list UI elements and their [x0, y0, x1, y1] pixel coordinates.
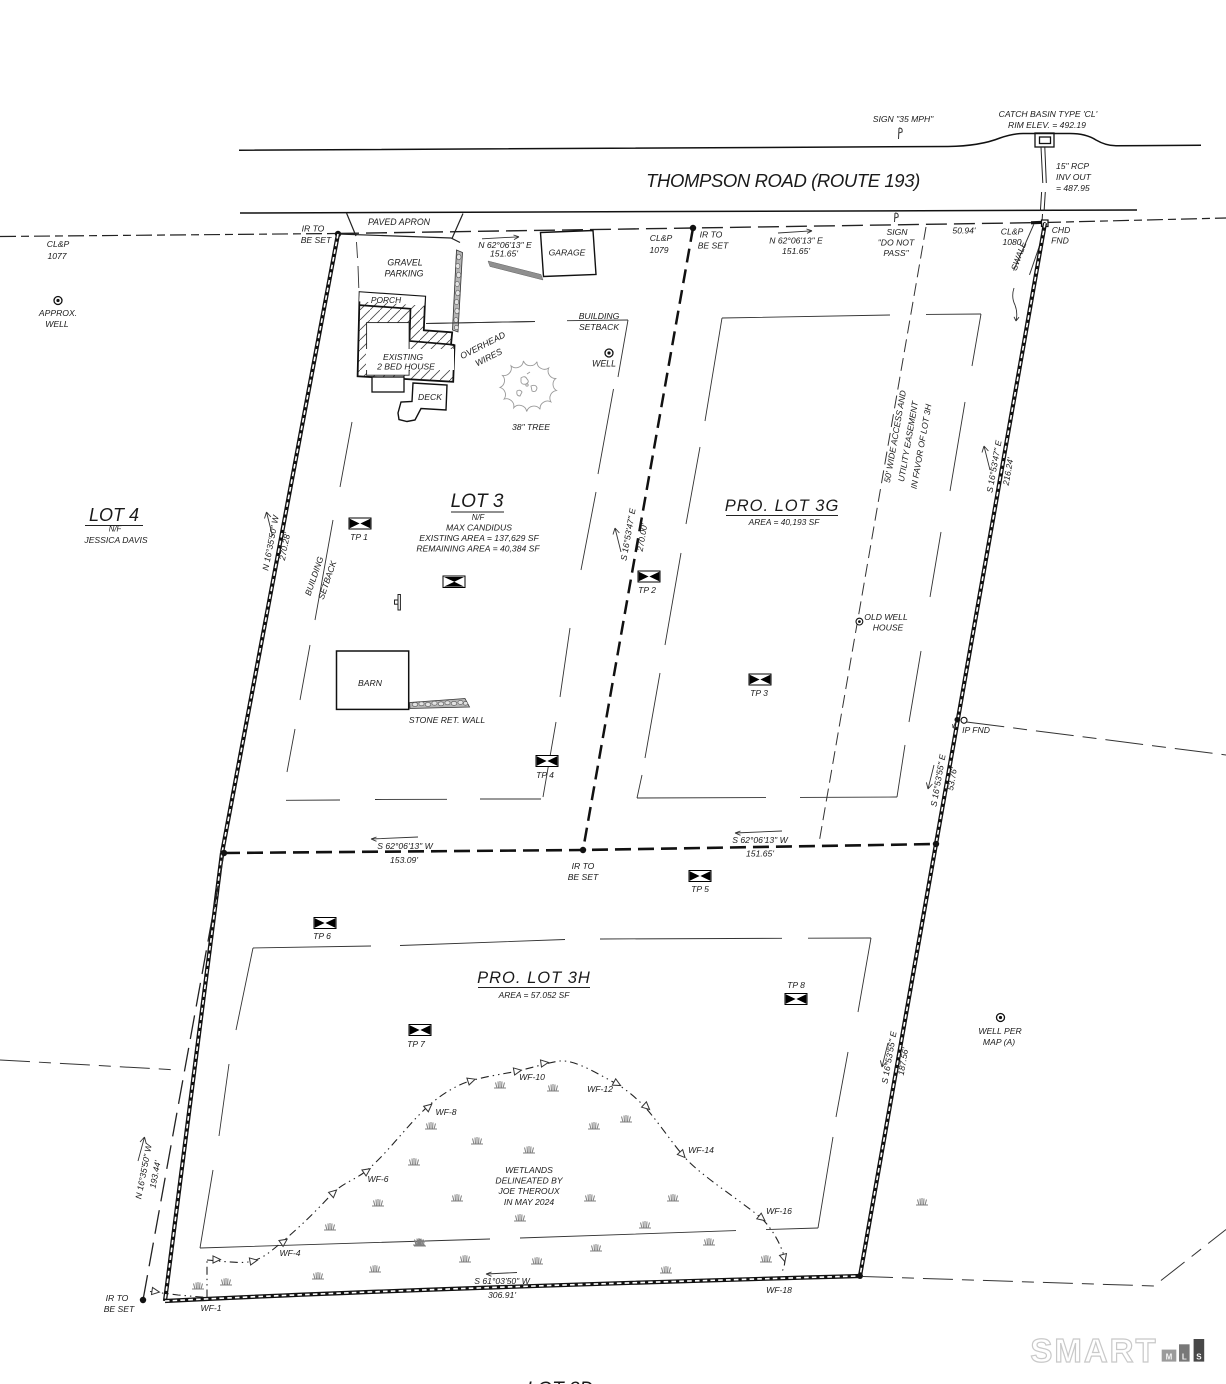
svg-text:FND: FND	[1051, 236, 1069, 246]
svg-text:MAX CANDIDUS: MAX CANDIDUS	[446, 523, 512, 533]
svg-text:IR TO: IR TO	[302, 224, 325, 234]
svg-text:SMART: SMART	[1030, 1332, 1157, 1369]
svg-text:WF-1: WF-1	[200, 1303, 221, 1313]
svg-text:S 61°03'50" W: S 61°03'50" W	[474, 1276, 530, 1286]
svg-text:APPROX.: APPROX.	[38, 308, 77, 318]
svg-text:BE SET: BE SET	[104, 1304, 135, 1314]
svg-text:PRO. LOT 3H: PRO. LOT 3H	[477, 969, 591, 987]
svg-text:1079: 1079	[649, 245, 668, 255]
svg-text:SIGN: SIGN	[886, 227, 908, 237]
svg-text:50.94': 50.94'	[952, 226, 976, 236]
svg-text:WF-18: WF-18	[766, 1285, 792, 1295]
svg-text:L: L	[1182, 1353, 1187, 1362]
svg-text:CL&P: CL&P	[47, 239, 70, 249]
svg-text:PARKING: PARKING	[385, 269, 424, 279]
svg-text:AREA = 40,193 SF: AREA = 40,193 SF	[748, 517, 821, 527]
svg-text:WF-6: WF-6	[367, 1174, 388, 1184]
svg-text:WF-10: WF-10	[519, 1072, 545, 1082]
svg-text:TP 1: TP 1	[350, 532, 368, 542]
svg-text:151.65': 151.65'	[782, 246, 810, 256]
svg-text:OLD WELL: OLD WELL	[864, 612, 908, 622]
svg-text:DECK: DECK	[418, 392, 443, 402]
svg-text:S: S	[1196, 1353, 1202, 1362]
svg-text:CL&P: CL&P	[650, 233, 673, 243]
svg-text:38" TREE: 38" TREE	[512, 422, 550, 432]
svg-text:EXISTING AREA = 137,629 SF: EXISTING AREA = 137,629 SF	[419, 533, 539, 543]
svg-text:REMAINING AREA = 40,384 SF: REMAINING AREA = 40,384 SF	[416, 544, 540, 554]
svg-text:INV OUT: INV OUT	[1056, 172, 1092, 182]
svg-text:WELL PER: WELL PER	[978, 1026, 1021, 1036]
svg-text:THOMPSON ROAD (ROUTE 193): THOMPSON ROAD (ROUTE 193)	[646, 170, 920, 191]
svg-text:SIGN "35 MPH": SIGN "35 MPH"	[873, 114, 934, 124]
svg-text:TP 3: TP 3	[750, 688, 768, 698]
svg-text:306.91': 306.91'	[488, 1290, 516, 1300]
svg-text:S 62°06'13" W: S 62°06'13" W	[732, 835, 788, 845]
svg-text:PASS": PASS"	[883, 248, 909, 258]
svg-text:WF-8: WF-8	[435, 1107, 456, 1117]
svg-text:151.65': 151.65'	[490, 249, 518, 259]
svg-text:BARN: BARN	[358, 678, 383, 688]
svg-text:WELL: WELL	[592, 359, 616, 369]
svg-text:WF-4: WF-4	[279, 1248, 300, 1258]
svg-text:M: M	[1166, 1353, 1173, 1362]
svg-text:WF-12: WF-12	[587, 1084, 613, 1094]
svg-text:BE SET: BE SET	[698, 241, 729, 251]
svg-text:TP 4: TP 4	[536, 770, 554, 780]
svg-text:N 62°06'13" E: N 62°06'13" E	[769, 236, 823, 246]
svg-text:GARAGE: GARAGE	[549, 248, 586, 258]
svg-text:= 487.95: = 487.95	[1056, 183, 1090, 193]
svg-text:MAP (A): MAP (A)	[983, 1037, 1015, 1047]
svg-text:TP 5: TP 5	[691, 884, 709, 894]
svg-text:IP FND: IP FND	[962, 725, 990, 735]
svg-text:PORCH: PORCH	[371, 295, 402, 305]
svg-text:IR TO: IR TO	[700, 230, 723, 240]
svg-text:TP 2: TP 2	[638, 585, 656, 595]
svg-text:N/F: N/F	[472, 513, 486, 522]
svg-text:PRO. LOT 3G: PRO. LOT 3G	[725, 497, 840, 515]
svg-text:GRAVEL: GRAVEL	[387, 258, 422, 268]
svg-text:IN MAY 2024: IN MAY 2024	[504, 1197, 555, 1207]
svg-text:TP 7: TP 7	[407, 1039, 426, 1049]
svg-text:TP 6: TP 6	[313, 931, 331, 941]
svg-text:LOT 4: LOT 4	[89, 505, 139, 525]
svg-text:BE SET: BE SET	[568, 872, 599, 882]
svg-text:HOUSE: HOUSE	[873, 623, 904, 633]
svg-text:LOT 3: LOT 3	[451, 491, 504, 512]
svg-text:SETBACK: SETBACK	[579, 322, 620, 332]
svg-text:PAVED APRON: PAVED APRON	[368, 217, 431, 227]
svg-text:IR TO: IR TO	[572, 861, 595, 871]
svg-text:TP 8: TP 8	[787, 980, 805, 990]
svg-text:DELINEATED BY: DELINEATED BY	[495, 1176, 563, 1186]
svg-text:151.65': 151.65'	[746, 849, 774, 859]
svg-text:15" RCP: 15" RCP	[1056, 161, 1089, 171]
svg-text:153.09': 153.09'	[390, 855, 418, 865]
svg-text:N/F: N/F	[109, 525, 123, 534]
svg-text:IR TO: IR TO	[106, 1293, 129, 1303]
svg-text:WELL: WELL	[45, 319, 69, 329]
svg-text:RIM ELEV. = 492.19: RIM ELEV. = 492.19	[1008, 120, 1086, 130]
svg-text:BUILDING: BUILDING	[579, 311, 620, 321]
svg-text:WF-16: WF-16	[766, 1206, 792, 1216]
svg-text:EXISTING: EXISTING	[383, 352, 423, 362]
svg-text:CHD: CHD	[1052, 225, 1071, 235]
svg-text:WETLANDS: WETLANDS	[505, 1165, 553, 1175]
svg-text:AREA = 57.052 SF: AREA = 57.052 SF	[498, 990, 571, 1000]
svg-text:LOT 3D: LOT 3D	[527, 1379, 594, 1384]
svg-text:JESSICA DAVIS: JESSICA DAVIS	[83, 535, 147, 545]
svg-text:BE SET: BE SET	[301, 235, 332, 245]
svg-text:CL&P: CL&P	[1001, 227, 1024, 237]
svg-text:2 BED HOUSE: 2 BED HOUSE	[376, 362, 435, 372]
svg-text:CATCH BASIN TYPE 'CL': CATCH BASIN TYPE 'CL'	[999, 109, 1098, 119]
svg-text:"DO NOT: "DO NOT	[878, 238, 915, 248]
svg-text:WF-14: WF-14	[688, 1145, 714, 1155]
svg-text:JOE THEROUX: JOE THEROUX	[497, 1186, 559, 1196]
svg-text:STONE RET. WALL: STONE RET. WALL	[409, 715, 485, 725]
svg-text:S 62°06'13" W: S 62°06'13" W	[377, 841, 433, 851]
svg-text:1077: 1077	[47, 251, 67, 261]
